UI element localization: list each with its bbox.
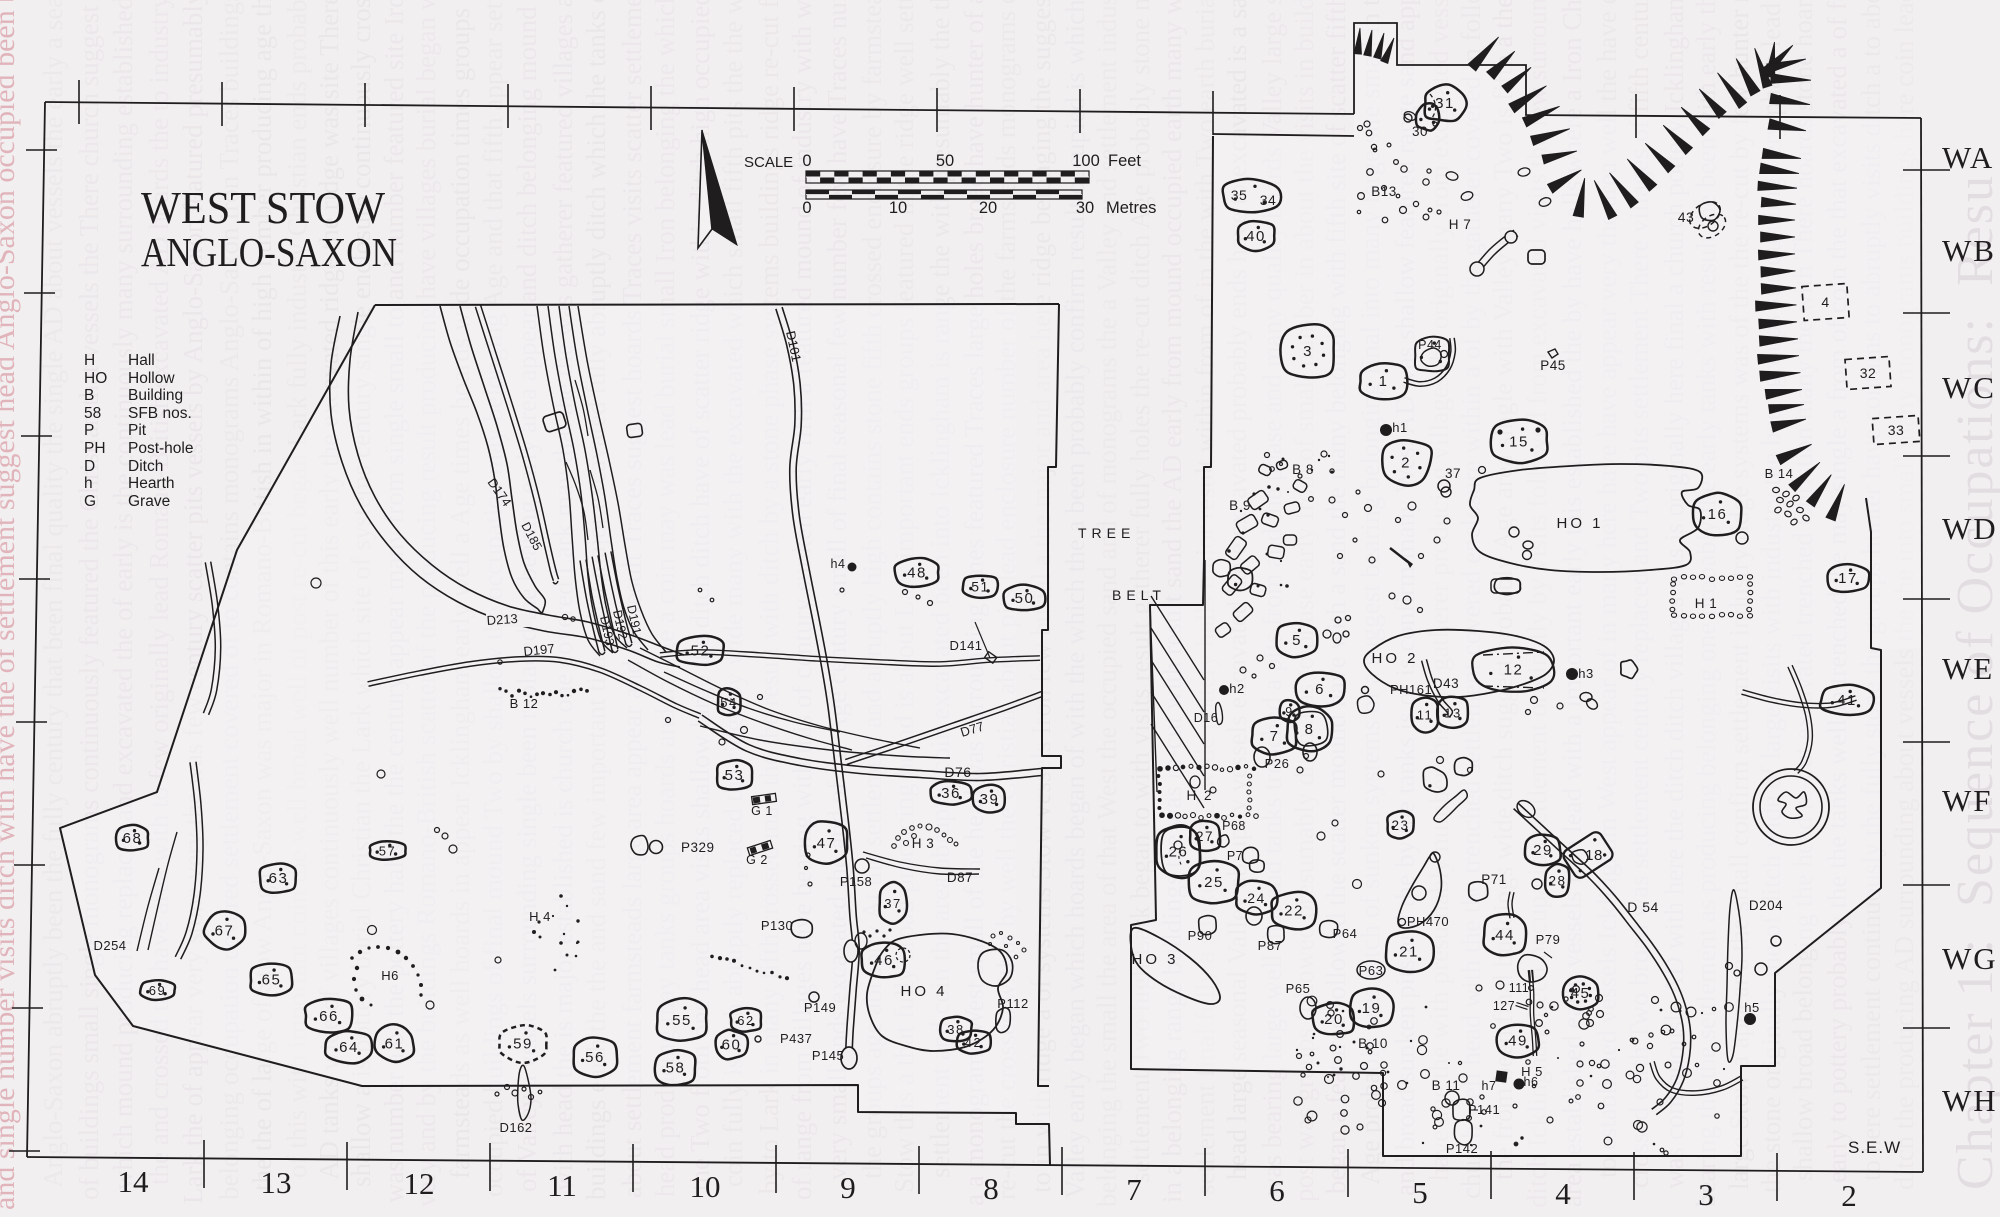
- svg-text:4: 4: [1555, 1176, 1571, 1211]
- svg-text:53: 53: [725, 767, 745, 784]
- svg-text:2: 2: [1841, 1178, 1857, 1213]
- svg-text:4: 4: [1821, 294, 1829, 310]
- svg-text:SFB nos.: SFB nos.: [128, 405, 192, 422]
- svg-text:20: 20: [979, 199, 997, 217]
- svg-text:37: 37: [1445, 466, 1461, 481]
- svg-text:P45: P45: [1540, 358, 1566, 373]
- svg-text:30: 30: [1076, 199, 1094, 217]
- svg-text:P149: P149: [804, 1000, 836, 1015]
- svg-text:30: 30: [1412, 124, 1428, 139]
- svg-text:49: 49: [1508, 1033, 1528, 1050]
- svg-text:27: 27: [1196, 829, 1214, 844]
- svg-text:B13: B13: [1371, 184, 1397, 199]
- svg-text:WC: WC: [1942, 370, 1996, 405]
- svg-text:7: 7: [1126, 1172, 1142, 1207]
- svg-text:P145: P145: [812, 1048, 844, 1063]
- svg-text:66: 66: [319, 1008, 339, 1025]
- svg-text:G 2: G 2: [746, 853, 768, 867]
- svg-text:h2: h2: [1229, 681, 1244, 696]
- svg-text:BELT: BELT: [1112, 587, 1166, 603]
- svg-text:67: 67: [215, 923, 235, 940]
- svg-text:22: 22: [1284, 903, 1304, 920]
- svg-text:5: 5: [1292, 632, 1302, 649]
- svg-text:43: 43: [1678, 209, 1695, 225]
- svg-text:B 11: B 11: [1432, 1078, 1461, 1093]
- svg-text:belonging the small the area o: belonging the small the area of that Wes…: [1092, 0, 1122, 1207]
- svg-text:P65: P65: [1286, 981, 1311, 996]
- svg-text:Post-hole: Post-hole: [128, 440, 193, 457]
- svg-text:54: 54: [720, 695, 737, 710]
- svg-text:8: 8: [983, 1171, 999, 1206]
- svg-text:H 5: H 5: [1521, 1064, 1543, 1079]
- svg-text:29: 29: [1533, 842, 1553, 859]
- svg-text:7: 7: [1270, 728, 1280, 745]
- svg-text:P87: P87: [1258, 938, 1283, 953]
- svg-text:12: 12: [1504, 662, 1524, 679]
- svg-text:6: 6: [1269, 1173, 1285, 1208]
- svg-text:24: 24: [1247, 890, 1266, 906]
- svg-text:50: 50: [1015, 590, 1035, 607]
- svg-text:Building: Building: [128, 387, 183, 404]
- svg-text:HO 4: HO 4: [900, 983, 947, 1000]
- svg-text:P79: P79: [1536, 932, 1561, 947]
- svg-text:WG: WG: [1942, 941, 1998, 976]
- svg-text:37: 37: [884, 896, 901, 911]
- svg-text:P130: P130: [761, 918, 793, 933]
- svg-text:WH: WH: [1942, 1083, 1998, 1118]
- svg-text:WE: WE: [1942, 651, 1994, 686]
- svg-text:P: P: [84, 422, 94, 439]
- svg-text:65: 65: [262, 972, 282, 989]
- svg-text:B 8: B 8: [1292, 462, 1314, 477]
- svg-text:P90: P90: [1188, 928, 1213, 943]
- svg-text:Anglo-Saxon abruptly been the: Anglo-Saxon abruptly been the fully cent…: [38, 0, 68, 1188]
- svg-text:P26: P26: [1265, 756, 1290, 771]
- svg-text:ANGLO-SAXON: ANGLO-SAXON: [141, 229, 397, 275]
- svg-text:P44: P44: [1418, 338, 1442, 352]
- svg-text:17: 17: [1838, 570, 1858, 587]
- svg-text:P437: P437: [780, 1031, 812, 1046]
- svg-text:36: 36: [941, 785, 961, 802]
- svg-text:32: 32: [1860, 365, 1877, 381]
- svg-text:WD: WD: [1942, 511, 1998, 546]
- svg-text:PH470: PH470: [1407, 914, 1449, 929]
- svg-text:19: 19: [1362, 1000, 1382, 1017]
- svg-text:WEST STOW: WEST STOW: [141, 182, 386, 233]
- svg-text:h5: h5: [1744, 1000, 1759, 1015]
- svg-text:D141: D141: [949, 638, 982, 653]
- svg-text:P68: P68: [1222, 819, 1246, 833]
- svg-text:D254: D254: [93, 938, 126, 953]
- svg-text:56: 56: [585, 1049, 605, 1066]
- svg-text:69: 69: [149, 983, 166, 998]
- svg-text:6: 6: [1315, 681, 1325, 698]
- svg-text:D162: D162: [499, 1120, 532, 1135]
- svg-text:Feet: Feet: [1108, 152, 1141, 170]
- svg-text:28: 28: [1548, 874, 1566, 889]
- svg-text:100: 100: [1072, 152, 1100, 170]
- svg-text:D87: D87: [947, 870, 973, 885]
- svg-text:10: 10: [889, 199, 907, 217]
- svg-text:2: 2: [1401, 455, 1411, 472]
- svg-text:SCALE: SCALE: [744, 154, 793, 171]
- svg-text:h1: h1: [1392, 420, 1407, 435]
- svg-text:H6: H6: [381, 968, 399, 983]
- svg-text:33: 33: [1888, 422, 1905, 438]
- svg-text:45: 45: [1571, 985, 1591, 1002]
- svg-text:13: 13: [1444, 706, 1461, 721]
- svg-text:D213: D213: [486, 611, 518, 628]
- svg-text:127: 127: [1493, 999, 1515, 1013]
- svg-text:PH: PH: [84, 440, 106, 457]
- svg-text:41: 41: [1837, 692, 1857, 709]
- svg-text:21: 21: [1399, 944, 1419, 961]
- svg-text:PH161: PH161: [1390, 682, 1432, 697]
- svg-text:HO 1: HO 1: [1556, 515, 1603, 532]
- svg-text:B: B: [84, 387, 94, 404]
- svg-text:57: 57: [379, 844, 396, 859]
- svg-text:9: 9: [840, 1170, 856, 1205]
- svg-text:51: 51: [971, 579, 990, 595]
- svg-text:D: D: [84, 458, 95, 475]
- svg-text:44: 44: [1495, 927, 1515, 944]
- svg-text:8: 8: [1305, 721, 1315, 738]
- svg-text:HO 3: HO 3: [1131, 951, 1178, 968]
- svg-text:Metres: Metres: [1106, 199, 1156, 217]
- svg-text:13: 13: [261, 1165, 292, 1200]
- svg-text:HO: HO: [84, 370, 107, 387]
- svg-text:B 12: B 12: [510, 696, 539, 711]
- svg-text:h3: h3: [1578, 666, 1593, 681]
- svg-text:Grave: Grave: [128, 493, 170, 510]
- svg-text:P158: P158: [840, 874, 872, 889]
- svg-text:D76: D76: [944, 764, 971, 780]
- svg-text:D43: D43: [1433, 676, 1459, 691]
- svg-text:42: 42: [965, 1035, 982, 1050]
- svg-text:h7: h7: [1482, 1079, 1497, 1093]
- svg-text:3: 3: [1698, 1177, 1714, 1212]
- svg-text:S.E.W: S.E.W: [1848, 1138, 1901, 1157]
- svg-text:D 54: D 54: [1627, 899, 1659, 915]
- svg-text:39: 39: [980, 791, 1000, 808]
- svg-text:h: h: [84, 475, 93, 492]
- svg-text:D204: D204: [1749, 898, 1783, 913]
- svg-text:61: 61: [385, 1036, 405, 1053]
- svg-text:Ditch: Ditch: [128, 458, 163, 475]
- svg-text:h4: h4: [831, 557, 846, 571]
- svg-text:3: 3: [1303, 343, 1313, 360]
- svg-text:48: 48: [907, 565, 927, 582]
- svg-text:Hollow: Hollow: [128, 370, 175, 387]
- svg-text:P7: P7: [1227, 849, 1243, 863]
- svg-text:Pit: Pit: [128, 422, 147, 439]
- svg-text:55: 55: [672, 1012, 692, 1029]
- svg-text:G 1: G 1: [751, 804, 773, 818]
- svg-text:59: 59: [513, 1036, 533, 1053]
- svg-text:11: 11: [547, 1168, 577, 1203]
- svg-text:P71: P71: [1481, 872, 1507, 887]
- svg-text:and single number visits ditch: and single number visits ditch with have…: [0, 0, 21, 1210]
- svg-text:Hall: Hall: [128, 352, 155, 369]
- svg-text:TREE: TREE: [1078, 525, 1135, 541]
- svg-text:Hearth: Hearth: [128, 475, 175, 492]
- svg-text:64: 64: [339, 1039, 359, 1056]
- svg-text:58: 58: [84, 405, 101, 422]
- svg-text:P112: P112: [997, 996, 1028, 1011]
- svg-text:58: 58: [666, 1060, 686, 1077]
- svg-text:0: 0: [802, 152, 811, 170]
- svg-text:40: 40: [1246, 228, 1266, 245]
- svg-text:G: G: [84, 493, 96, 510]
- svg-text:P64: P64: [1333, 926, 1358, 941]
- svg-text:of buildings small single mono: of buildings small single monograms cont…: [74, 0, 104, 1200]
- svg-text:38: 38: [947, 1022, 964, 1037]
- svg-text:1: 1: [1379, 373, 1389, 390]
- svg-text:P63: P63: [1359, 963, 1384, 978]
- svg-text:H: H: [84, 352, 95, 369]
- svg-text:WF: WF: [1942, 783, 1993, 818]
- svg-text:12: 12: [404, 1166, 435, 1201]
- svg-text:34: 34: [1260, 192, 1277, 208]
- svg-text:62: 62: [737, 1013, 754, 1028]
- svg-text:B 10: B 10: [1358, 1036, 1388, 1051]
- svg-text:11: 11: [1417, 708, 1434, 723]
- svg-text:35: 35: [1231, 187, 1248, 203]
- svg-text:60: 60: [722, 1037, 742, 1054]
- svg-text:10: 10: [690, 1169, 721, 1204]
- svg-text:P142: P142: [1446, 1141, 1478, 1156]
- svg-text:H 2: H 2: [1186, 788, 1213, 803]
- svg-text:WB: WB: [1942, 233, 1996, 268]
- svg-text:D16: D16: [1194, 711, 1218, 725]
- svg-text:B 14: B 14: [1765, 466, 1794, 481]
- svg-text:63: 63: [269, 870, 289, 887]
- svg-text:47: 47: [817, 835, 837, 852]
- svg-text:WA: WA: [1942, 140, 1994, 175]
- svg-text:14: 14: [118, 1164, 150, 1199]
- svg-text:25: 25: [1204, 874, 1224, 891]
- svg-text:P329: P329: [681, 840, 715, 855]
- svg-text:H 1: H 1: [1695, 596, 1718, 611]
- svg-text:52: 52: [691, 643, 711, 660]
- svg-text:0: 0: [802, 199, 811, 217]
- svg-text:HO 2: HO 2: [1371, 650, 1418, 667]
- svg-text:68: 68: [123, 830, 143, 847]
- svg-text:111: 111: [1509, 981, 1530, 995]
- svg-text:5: 5: [1412, 1175, 1428, 1210]
- svg-text:15: 15: [1509, 434, 1529, 451]
- svg-text:H 7: H 7: [1449, 217, 1472, 232]
- svg-text:50: 50: [936, 152, 954, 170]
- svg-text:23: 23: [1391, 818, 1409, 833]
- svg-text:16: 16: [1708, 506, 1728, 523]
